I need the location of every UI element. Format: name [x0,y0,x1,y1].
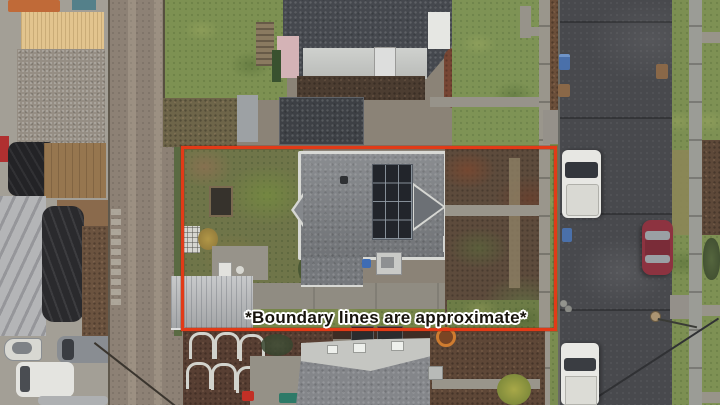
skylight-3 [391,341,404,351]
plywood-stack [44,143,106,198]
boundary-caption: *Boundary lines are approximate* [183,308,589,328]
arch-trellis-2 [214,332,240,359]
white-truck-north-bed [566,184,599,216]
driveway-apron-west [543,110,558,144]
skylight-2 [353,343,366,353]
east-bush [703,238,720,280]
teal-box [72,0,96,10]
east-walkway-2 [702,305,720,316]
boat-interior [12,342,32,354]
alley-fence [111,205,121,305]
orange-lumber [8,0,60,12]
white-truck-south-windshield [564,358,596,371]
garage-roof-dark [279,97,364,145]
gravel-roof [17,49,105,146]
white-truck-south-bed [565,376,597,405]
bottom-shrubs [261,334,293,356]
arch-trellis-4 [186,362,212,389]
top-hedge [272,50,281,82]
parkstrip-west-mulch [550,0,558,115]
red-sedan-windshield-front [645,231,670,240]
white-truck-north-windshield [565,162,598,178]
blue-bin-north [559,54,570,70]
bottom-utility-box [428,366,443,380]
black-tarp-long [42,206,84,322]
top-porch-awning [303,48,427,79]
brown-bin-east [656,64,668,79]
yellow-green-bush [497,374,531,405]
blue-bin-south [562,228,572,242]
red-toy [242,391,254,401]
tan-corrugated-roof [21,12,104,49]
top-scrub-band [163,98,237,147]
brown-bin-west [558,84,570,97]
boundary-outline [181,146,557,331]
arch-trellis-1 [189,332,215,359]
white-van-windshield [20,366,30,392]
red-sedan-windshield-rear [645,255,670,263]
top-walkway-horizontal [430,97,540,107]
arch-trellis-5 [211,363,237,390]
parkstrip-east-dry-patch [672,150,689,235]
skylight-1 [327,345,338,354]
east-walkway-1 [702,32,720,43]
aerial-photo: *Boundary lines are approximate* [0,0,720,405]
garage-roof-light [237,95,258,142]
red-sedan-roof [645,240,670,255]
east-mulch-bed [702,140,720,235]
top-white-corner-porch [428,12,450,49]
gray-car-bottom [38,396,108,405]
driveway-apron-east [670,295,690,319]
gray-tarp [0,196,46,336]
east-walkway-3 [702,392,720,403]
sidewalk-east [689,0,702,405]
gray-suv-windshield [62,339,74,360]
